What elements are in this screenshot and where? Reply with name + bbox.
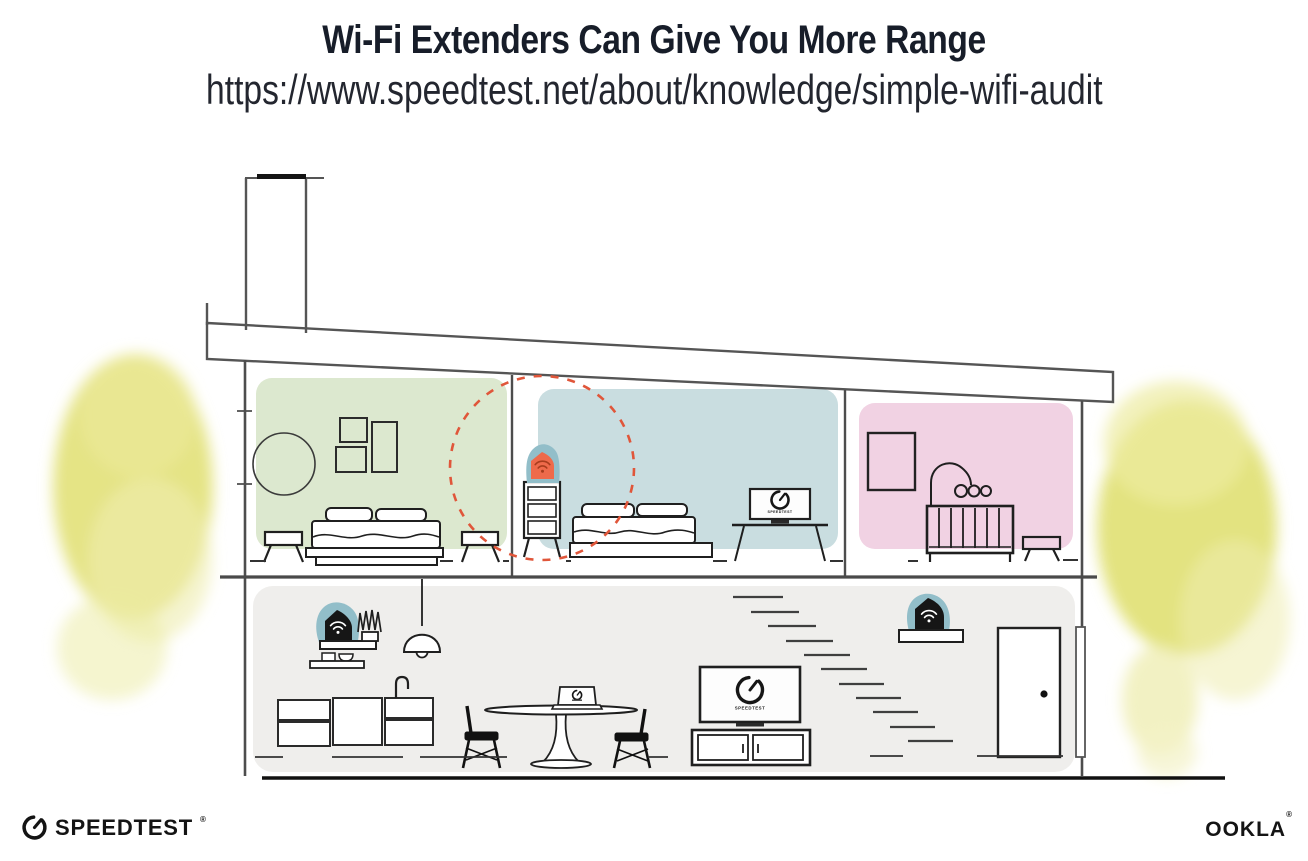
- plant-pot: [362, 632, 378, 641]
- speedtest-gauge-icon: [21, 814, 48, 841]
- chimney: [245, 174, 324, 333]
- tv-screen: [750, 489, 810, 519]
- ookla-wordmark: OOKLA: [1205, 818, 1286, 841]
- living-room-tv: SPEEDTEST: [700, 667, 800, 727]
- drainpipe: [1076, 627, 1085, 757]
- nursery-background: [859, 403, 1073, 549]
- entry-door: [998, 628, 1060, 757]
- chimney-cap: [257, 174, 306, 179]
- speedtest-logo: SPEEDTEST®: [21, 814, 206, 841]
- wall-shelf: [899, 630, 963, 642]
- tv-foot: [736, 723, 764, 727]
- laptop: [552, 687, 602, 709]
- tv-screen: [700, 667, 800, 722]
- ookla-logo: OOKLA®: [1205, 818, 1292, 842]
- foliage-left: [53, 353, 213, 700]
- tv-foot: [771, 520, 789, 524]
- media-console: [692, 730, 810, 765]
- door-knob: [1040, 690, 1047, 697]
- bedroom-tv-label: SPEEDTEST: [768, 510, 793, 514]
- kitchen-cabinets: [278, 698, 433, 746]
- house-cross-section-illustration: SPEEDTEST: [0, 0, 1308, 861]
- wifi-extender-badge: [526, 444, 559, 483]
- speedtest-trademark: ®: [200, 815, 206, 824]
- page: { "header": { "title": "Wi-Fi Extenders …: [0, 0, 1308, 861]
- ookla-trademark: ®: [1286, 810, 1292, 819]
- living-room-tv-label: SPEEDTEST: [735, 706, 766, 711]
- speedtest-wordmark: SPEEDTEST: [55, 815, 193, 841]
- wall-shelf: [320, 641, 376, 649]
- foliage-right: [1097, 381, 1290, 778]
